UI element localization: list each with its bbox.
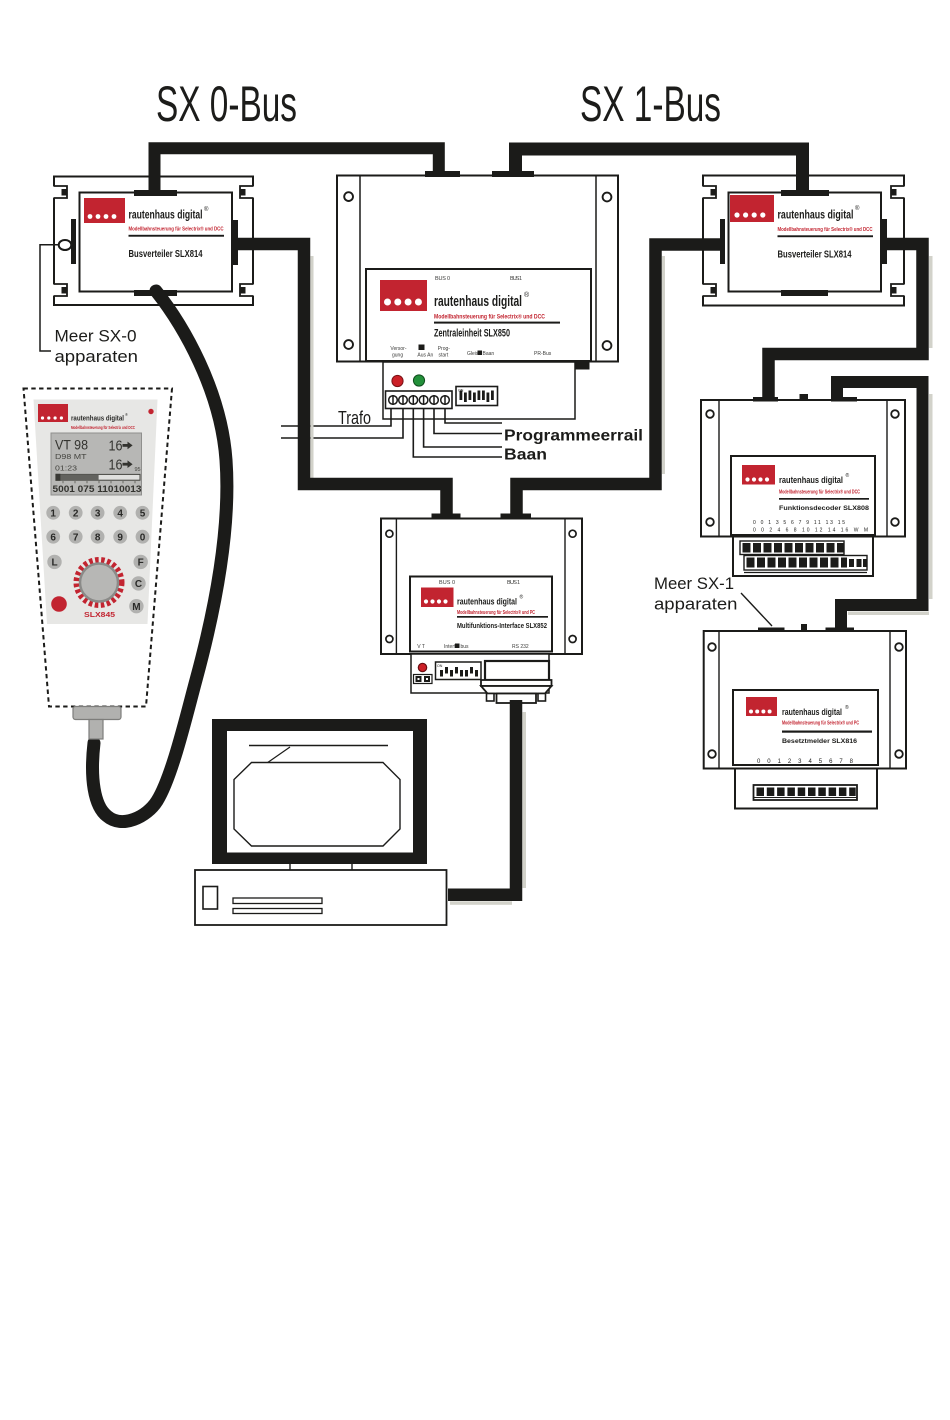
svg-text:Prog-: Prog-	[438, 346, 451, 352]
svg-text:VT 98: VT 98	[55, 437, 88, 453]
svg-text:L: L	[51, 558, 57, 569]
svg-text:Funktionsdecoder SLX808: Funktionsdecoder SLX808	[779, 505, 869, 512]
svg-text:rautenhaus digital: rautenhaus digital	[457, 597, 517, 608]
svg-text:RS 232: RS 232	[512, 644, 529, 650]
svg-text:95: 95	[135, 467, 141, 473]
svg-text:bus: bus	[461, 644, 470, 650]
svg-text:BUS 1: BUS 1	[510, 276, 522, 282]
svg-text:start: start	[439, 353, 449, 359]
svg-text:rautenhaus digital: rautenhaus digital	[129, 208, 203, 222]
svg-text:M: M	[132, 602, 140, 613]
svg-text:rautenhaus digital: rautenhaus digital	[779, 475, 843, 486]
svg-text:BUS 1: BUS 1	[507, 580, 520, 586]
svg-text:01:23: 01:23	[55, 464, 77, 473]
svg-text:SLX845: SLX845	[84, 612, 115, 619]
svg-text:rautenhaus digital: rautenhaus digital	[71, 416, 124, 423]
svg-text:PR-Bus: PR-Bus	[534, 351, 552, 357]
svg-text:Modellbahnsteuerung für Select: Modellbahnsteuerung für Selectrix® und P…	[782, 720, 859, 727]
svg-text:Meer SX-0: Meer SX-0	[55, 328, 137, 346]
svg-text:Modellbahnsteuerung für Select: Modellbahnsteuerung für Selectrix und DC…	[71, 425, 135, 431]
svg-text:BUS 0: BUS 0	[439, 580, 455, 586]
svg-text:apparaten: apparaten	[654, 596, 738, 614]
svg-text:0: 0	[140, 532, 146, 543]
svg-text:Trafo: Trafo	[338, 408, 371, 428]
svg-text:rautenhaus digital: rautenhaus digital	[782, 707, 842, 717]
svg-text:8: 8	[95, 532, 101, 543]
svg-text:®: ®	[520, 594, 524, 601]
svg-text:apparaten: apparaten	[55, 348, 139, 366]
svg-text:Programmeerrail: Programmeerrail	[504, 428, 643, 445]
svg-text:®: ®	[846, 472, 850, 479]
svg-text:Busverteiler SLX814: Busverteiler SLX814	[129, 249, 203, 260]
svg-text:®: ®	[524, 291, 530, 299]
svg-text:5001 075 11010013: 5001 075 11010013	[53, 484, 142, 494]
svg-text:6: 6	[50, 532, 56, 543]
svg-text:gung: gung	[392, 353, 403, 359]
svg-text:Baan: Baan	[483, 351, 495, 357]
svg-text:16: 16	[109, 439, 123, 455]
svg-text:Modellbahnsteuerung für Select: Modellbahnsteuerung für Selectrix® und D…	[434, 314, 546, 321]
svg-text:SX 0-Bus: SX 0-Bus	[156, 76, 297, 132]
svg-text:SX 1-Bus: SX 1-Bus	[580, 76, 721, 132]
svg-text:ON: ON	[437, 664, 443, 668]
svg-text:7: 7	[73, 532, 79, 543]
svg-text:5: 5	[140, 508, 146, 519]
svg-text:Interf: Interf	[444, 644, 456, 650]
svg-text:2: 2	[73, 508, 79, 519]
svg-text:®: ®	[845, 704, 849, 711]
svg-text:®: ®	[125, 412, 128, 417]
svg-text:3: 3	[95, 508, 101, 519]
svg-text:F: F	[138, 558, 144, 569]
svg-text:Multifunktions-Interface SLX85: Multifunktions-Interface SLX852	[457, 621, 547, 630]
svg-text:1: 1	[50, 508, 56, 519]
svg-text:Versor-: Versor-	[390, 346, 406, 352]
svg-text:rautenhaus digital: rautenhaus digital	[778, 208, 854, 222]
svg-text:4: 4	[117, 508, 123, 519]
svg-text:9: 9	[117, 532, 123, 543]
svg-text:Gleis: Gleis	[467, 351, 479, 357]
svg-text:C: C	[135, 579, 142, 590]
svg-text:rautenhaus digital: rautenhaus digital	[434, 294, 522, 310]
svg-text:Baan: Baan	[504, 447, 547, 464]
svg-text:BUS 0: BUS 0	[435, 276, 450, 282]
svg-text:Modellbahnsteuerung für Select: Modellbahnsteuerung für Selectrix® und D…	[129, 226, 224, 233]
svg-text:Modellbahnsteuerung für Select: Modellbahnsteuerung für Selectrix® und P…	[457, 609, 535, 616]
svg-text:Modellbahnsteuerung für Select: Modellbahnsteuerung für Selectrix® und D…	[778, 226, 873, 233]
svg-text:Aus An: Aus An	[417, 353, 433, 359]
svg-text:Zentraleinheit SLX850: Zentraleinheit SLX850	[434, 328, 510, 340]
svg-text:Busverteiler SLX814: Busverteiler SLX814	[778, 250, 852, 261]
svg-text:Modellbahnsteuerung für Select: Modellbahnsteuerung für Selectrix® und D…	[779, 489, 860, 496]
svg-text:D98 MT: D98 MT	[55, 452, 87, 461]
svg-text:®: ®	[204, 206, 209, 213]
svg-text:V T: V T	[417, 644, 425, 650]
svg-text:®: ®	[855, 205, 860, 212]
svg-text:16: 16	[109, 457, 123, 473]
svg-text:Meer SX-1: Meer SX-1	[654, 575, 734, 593]
svg-text:Besetztmelder SLX816: Besetztmelder SLX816	[782, 738, 857, 745]
